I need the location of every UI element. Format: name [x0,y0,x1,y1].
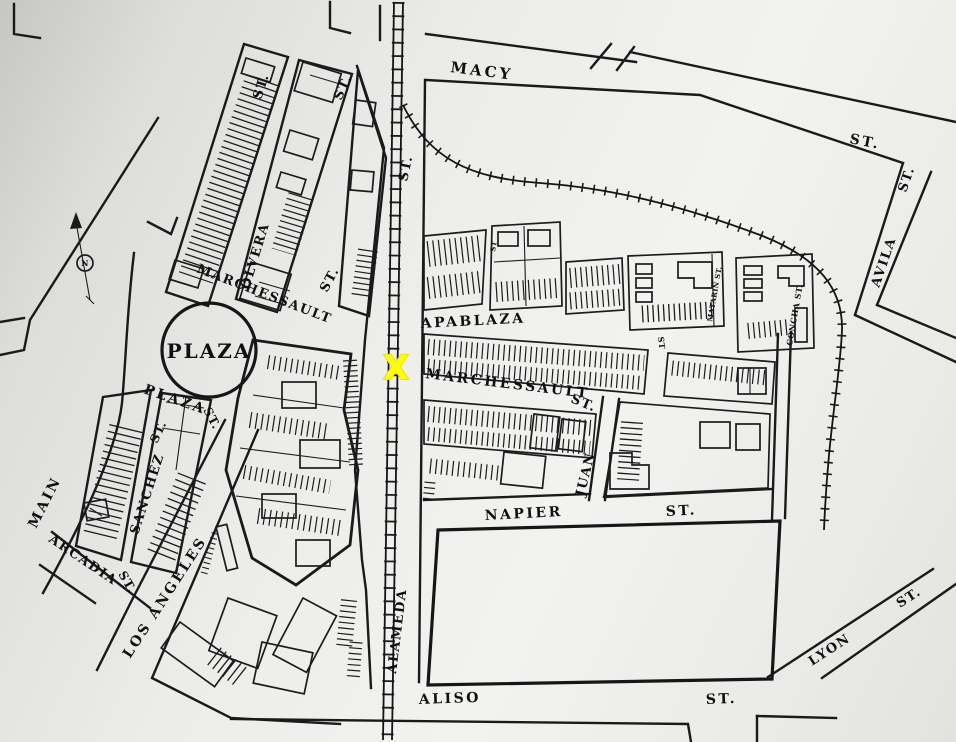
block-big-empty [428,521,780,685]
street-label-marchessault-w: MARCHESSAULT [195,262,334,327]
location-marker-x: X [383,348,408,387]
block-concha [736,254,814,352]
block-juan-east [604,402,770,496]
street-label-macy-st: ST. [848,131,882,153]
block-ne-strip1 [424,230,486,310]
street-label-napier-st: ST. [665,502,697,520]
block-row-east [664,353,775,404]
block-lower-west [161,598,356,694]
street-label-matarin-st: MATARIN ST. [705,266,724,323]
street-label-lyon-st: ST. [894,584,924,611]
street-label-arcadia: ARCADIA [45,531,120,588]
street-label-alameda-top-st: ST. [396,154,416,183]
block-ne-3 [566,258,624,314]
street-label-marchessault-e: MARCHESSAULT [425,366,591,402]
street-label-aliso: ALISO [418,690,482,708]
block-south-marchessault [424,400,596,502]
map-canvas: PLAZA N MACY ST. ST. AVILA ST. ST. ST. O… [0,0,956,742]
street-label-main: MAIN [25,474,65,531]
street-label-napier: NAPIER [484,504,563,524]
street-label-macy: MACY [450,58,515,84]
street-label-aliso-st: ST. [706,691,738,708]
street-label-plaza-st-name: PLAZA [142,382,209,418]
plaza-label: PLAZA [167,339,252,363]
street-label-apablaza: APABLAZA [419,311,526,333]
street-label-lane-st: ST [656,336,667,350]
street-label-block-st: ST [488,240,499,253]
compass-arrowhead [70,212,82,229]
block-sanchez-bar [204,524,238,574]
compass-n-label: N [81,258,89,268]
street-label-concha-st: CONCHA ST. [784,283,805,346]
street-label-avila-st: ST. [896,164,919,194]
street-label-juan: JUAN [573,451,599,499]
block-ne-2 [490,222,562,310]
street-label-sanchez-st: ST. [147,418,170,445]
historic-plaza-map: PLAZA N MACY ST. ST. AVILA ST. ST. ST. O… [0,0,956,742]
plaza-circle: PLAZA [162,303,256,397]
